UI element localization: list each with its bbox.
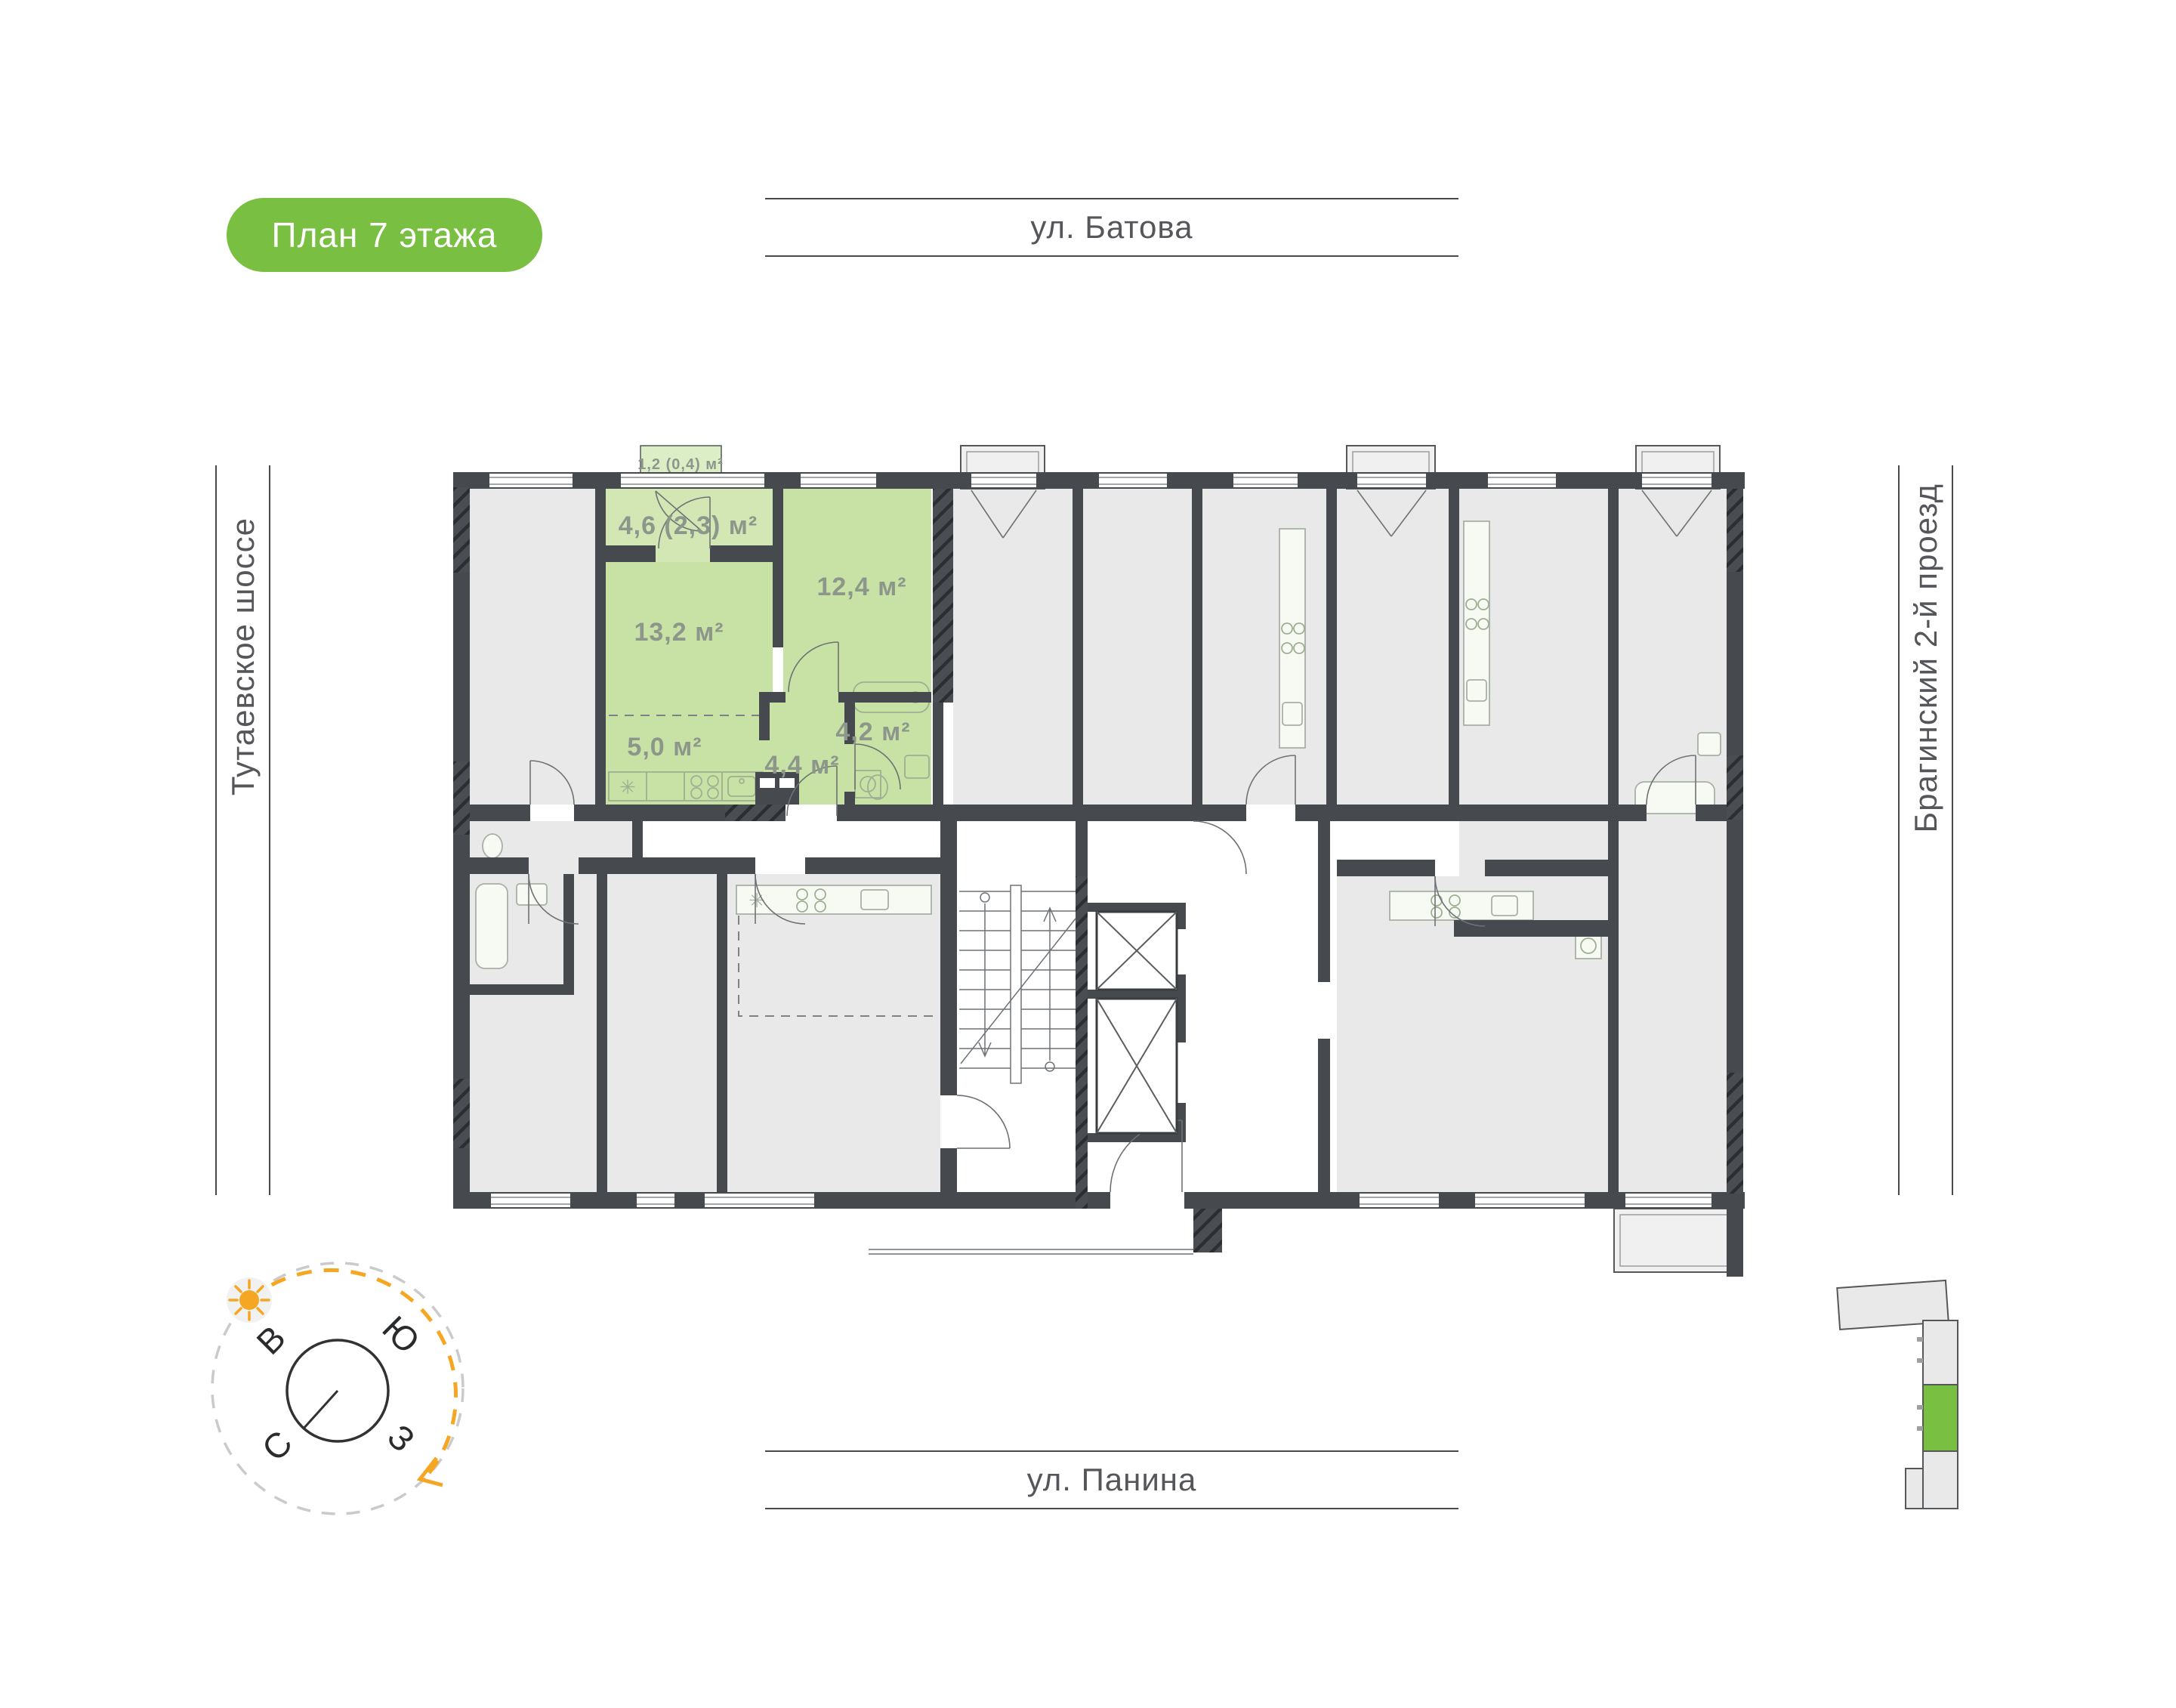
label-hallway-area: 4,4 м² — [764, 751, 839, 780]
minimap-section-step — [1906, 1469, 1923, 1509]
compass-letter-south: Ю — [375, 1308, 427, 1361]
room-living — [604, 562, 773, 805]
balcony-bottom-right — [1614, 1209, 1735, 1272]
compass-sun-icon — [227, 1277, 272, 1323]
compass: В Ю С З — [212, 1263, 463, 1514]
compass-letter-west: З — [380, 1416, 422, 1459]
floor-plan: ✳ — [453, 446, 1745, 1277]
label-kitchen-area: 5,0 м² — [627, 733, 702, 761]
fridge-icon: ✳ — [619, 776, 636, 798]
floor-plan-canvas: ✳ — [0, 0, 2176, 1708]
staircase — [959, 885, 1076, 1083]
minimap-selected-section[interactable] — [1923, 1385, 1958, 1451]
minimap-section-lower — [1923, 1451, 1958, 1509]
label-loggia-area: 4,6 (2,3) м² — [619, 511, 758, 540]
minimap-section-upper — [1923, 1320, 1958, 1385]
label-bathroom-area: 4,2 м² — [835, 718, 910, 746]
label-bedroom-area: 12,4 м² — [816, 573, 906, 601]
label-balcony-area: 1,2 (0,4) м² — [637, 456, 724, 473]
minimap — [1837, 1280, 1958, 1509]
compass-letter-east: В — [248, 1317, 292, 1361]
elevator-shafts — [1097, 912, 1177, 1133]
compass-letter-north: С — [255, 1423, 300, 1469]
windows-top — [489, 474, 1711, 487]
label-living-area: 13,2 м² — [634, 618, 724, 647]
